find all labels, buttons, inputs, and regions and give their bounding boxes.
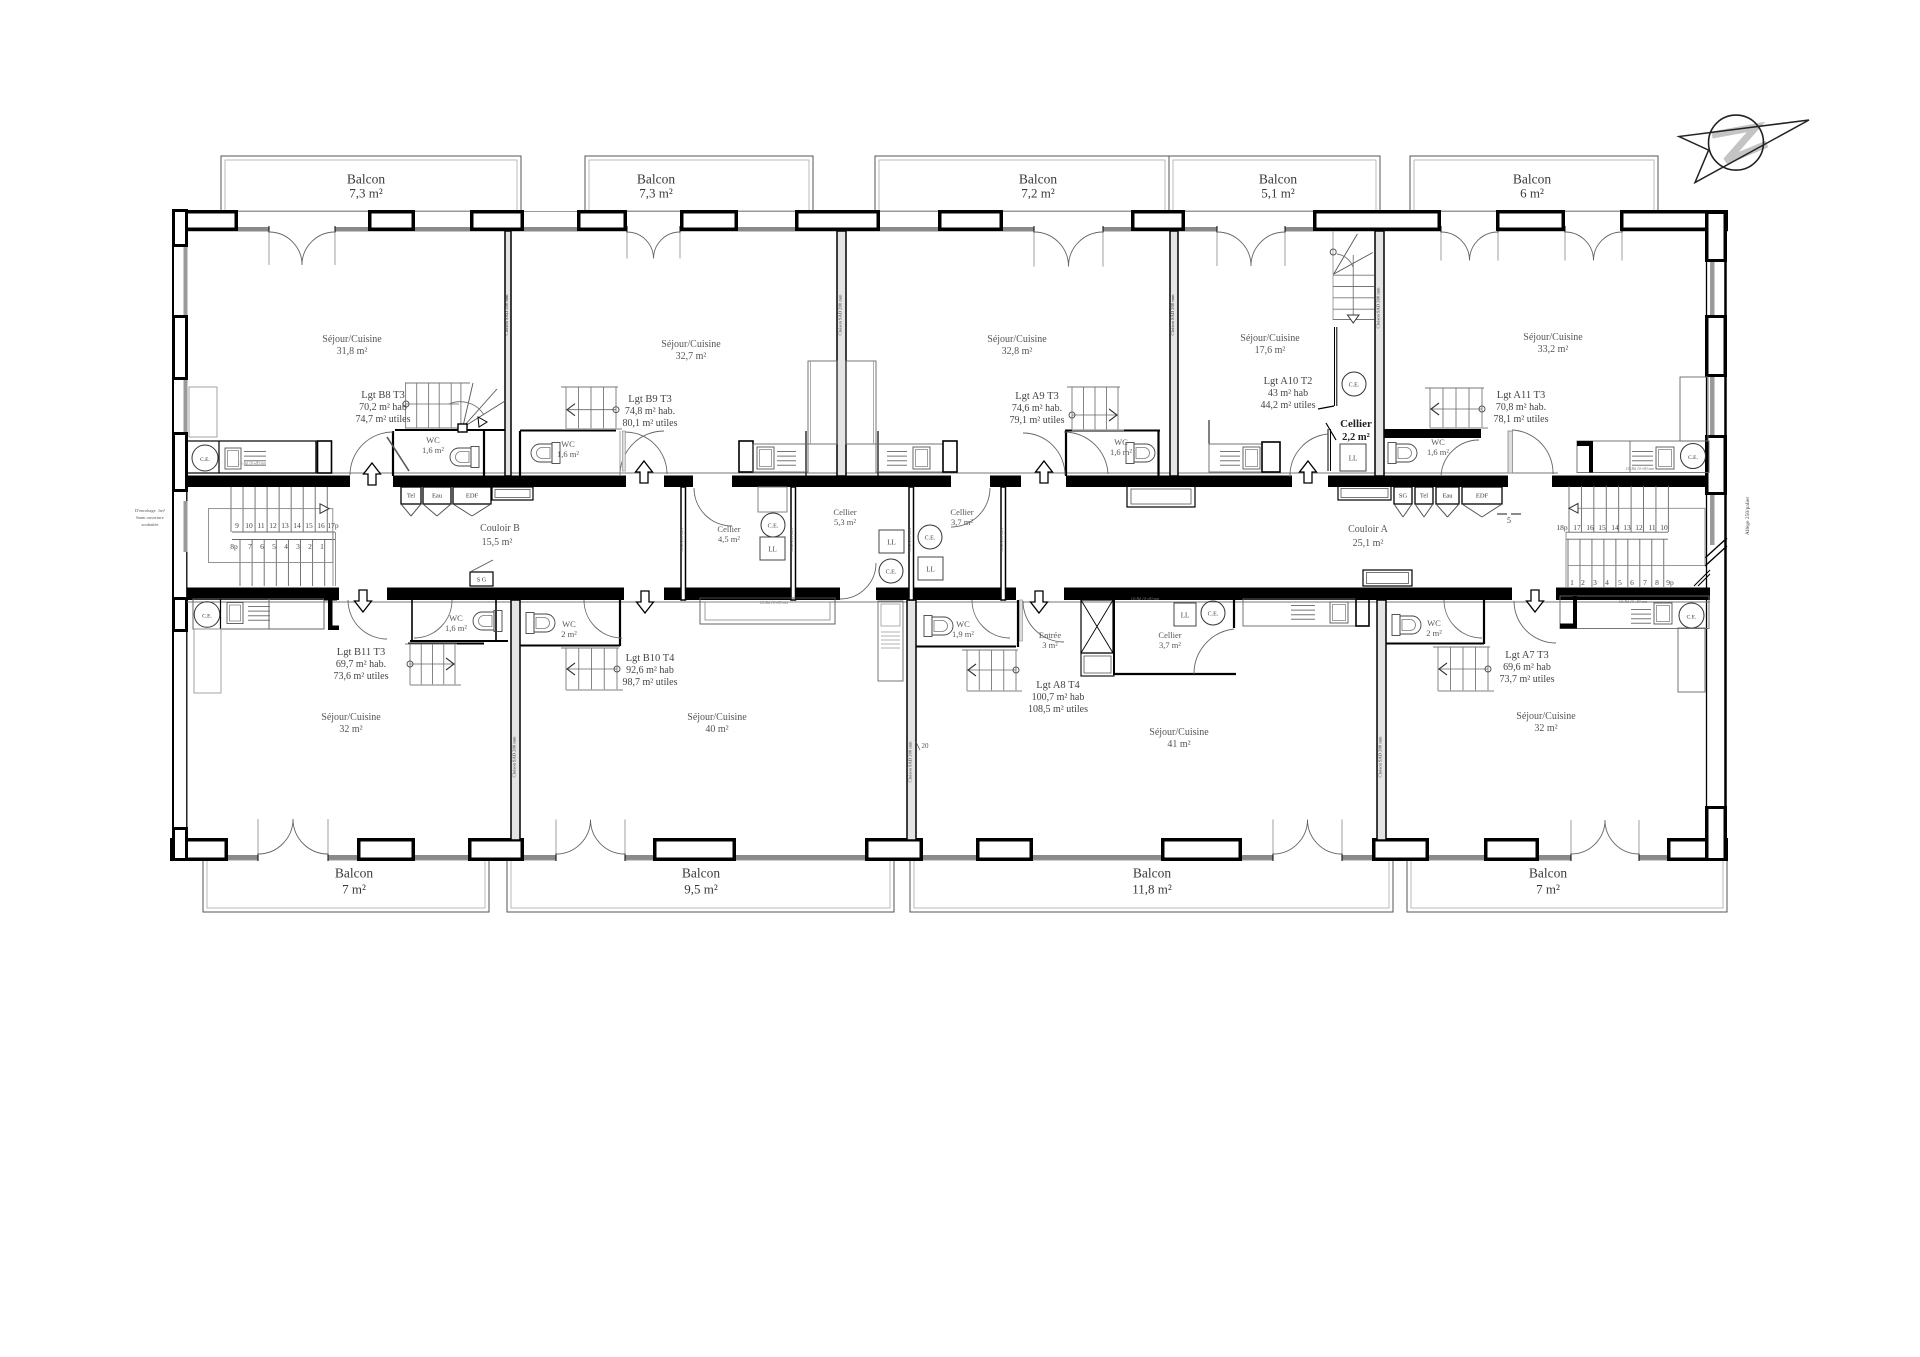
svg-text:12: 12 [269,521,277,530]
svg-text:3 m²: 3 m² [1042,640,1058,650]
svg-text:10: 10 [245,521,253,530]
svg-text:40 m²: 40 m² [705,724,728,735]
svg-text:70,2 m² hab: 70,2 m² hab [359,402,407,413]
svg-text:Cellier: Cellier [833,507,856,517]
svg-text:1,6 m²: 1,6 m² [1110,447,1132,457]
svg-text:souhaitée: souhaitée [142,522,159,527]
svg-text:Balcon: Balcon [347,172,385,187]
svg-text:Cellier: Cellier [950,507,973,517]
svg-text:7: 7 [1643,578,1647,587]
svg-text:13: 13 [281,521,289,530]
svg-text:70,8 m² hab.: 70,8 m² hab. [1496,402,1546,413]
svg-text:Cloison SAD 200 mm: Cloison SAD 200 mm [908,741,913,782]
svg-text:32,7 m²: 32,7 m² [676,351,707,362]
svg-text:Entrée: Entrée [1039,630,1061,640]
svg-text:11,8 m²: 11,8 m² [1132,882,1172,897]
svg-text:Balcon: Balcon [1133,866,1171,881]
svg-text:69,7 m² hab.: 69,7 m² hab. [336,659,386,670]
svg-text:73,7 m² utiles: 73,7 m² utiles [1500,674,1555,685]
svg-text:7,2 m²: 7,2 m² [1021,186,1055,201]
svg-text:74,8 m² hab.: 74,8 m² hab. [625,406,675,417]
svg-text:8: 8 [1655,578,1659,587]
svg-text:16: 16 [317,521,325,530]
svg-text:SG: SG [1399,493,1408,500]
svg-text:LL: LL [926,566,935,574]
svg-text:Tel: Tel [1420,493,1428,500]
svg-text:1,9 m²: 1,9 m² [952,629,974,639]
svg-text:Lgt A11 T3: Lgt A11 T3 [1497,390,1545,401]
svg-text:18p: 18p [1556,523,1568,532]
svg-text:WC: WC [1427,618,1441,628]
svg-text:C.E.: C.E. [1208,612,1219,618]
svg-text:Balcon: Balcon [1529,866,1567,881]
svg-text:Séjour/Cuisine: Séjour/Cuisine [661,339,721,350]
svg-text:Séjour/Cuisine: Séjour/Cuisine [1149,727,1209,738]
svg-text:2: 2 [308,542,312,551]
svg-text:43 m² hab: 43 m² hab [1268,388,1308,399]
svg-text:EDF: EDF [466,493,479,500]
svg-text:C.E.: C.E. [1688,455,1698,461]
svg-text:Eau: Eau [1442,493,1453,500]
svg-text:1: 1 [1570,578,1574,587]
svg-text:S G: S G [477,578,487,584]
svg-text:Balcon: Balcon [1513,172,1551,187]
svg-text:78,1 m² utiles: 78,1 m² utiles [1494,414,1549,425]
svg-text:LL: LL [887,539,896,547]
svg-text:Allège 250/palier: Allège 250/palier [1745,497,1751,536]
svg-text:Balcon: Balcon [335,866,373,881]
svg-text:15,5 m²: 15,5 m² [482,537,513,548]
svg-text:Lgt B11 T3: Lgt B11 T3 [337,647,385,658]
svg-text:17,6 m²: 17,6 m² [1255,345,1286,356]
svg-text:108,5 m² utiles: 108,5 m² utiles [1028,704,1088,715]
svg-text:Eau: Eau [432,493,443,500]
svg-text:Balcon: Balcon [1019,172,1057,187]
svg-text:SAD 200 mm: SAD 200 mm [789,528,794,552]
svg-text:Couloir A: Couloir A [1348,524,1389,535]
svg-text:Séjour/Cuisine: Séjour/Cuisine [687,712,747,723]
svg-text:Séjour/Cuisine: Séjour/Cuisine [1240,333,1300,344]
svg-text:12: 12 [1635,523,1643,532]
svg-text:41 m²: 41 m² [1167,739,1190,750]
svg-text:15: 15 [305,521,313,530]
svg-text:Cb.Bd 10+80 mm: Cb.Bd 10+80 mm [760,600,789,605]
svg-text:Lgt A8 T4: Lgt A8 T4 [1036,680,1080,691]
svg-text:Cloison SAD 200 mm: Cloison SAD 200 mm [1378,736,1383,777]
svg-text:5,3 m²: 5,3 m² [834,517,856,527]
svg-text:2,2 m²: 2,2 m² [1342,432,1370,443]
svg-text:92,6 m² hab: 92,6 m² hab [626,665,674,676]
svg-text:74,7 m² utiles: 74,7 m² utiles [356,414,411,425]
svg-text:Balcon: Balcon [682,866,720,881]
svg-text:C.E.: C.E. [200,457,210,463]
svg-text:WC: WC [426,435,440,445]
svg-text:7: 7 [248,542,252,551]
svg-text:4: 4 [284,542,288,551]
svg-text:1: 1 [320,542,324,551]
svg-text:Séjour/Cuisine: Séjour/Cuisine [1516,711,1576,722]
svg-text:16: 16 [1586,523,1594,532]
svg-text:Lgt B10 T4: Lgt B10 T4 [626,653,676,664]
svg-text:Cloison SAD 200 mm: Cloison SAD 200 mm [512,736,517,777]
svg-text:5: 5 [1507,516,1511,525]
svg-text:14: 14 [293,521,301,530]
svg-text:1,6 m²: 1,6 m² [445,623,467,633]
svg-text:Lgt A7 T3: Lgt A7 T3 [1505,650,1549,661]
svg-text:2: 2 [1581,578,1585,587]
svg-text:44,2 m² utiles: 44,2 m² utiles [1261,400,1316,411]
svg-text:3,7 m²: 3,7 m² [1159,640,1181,650]
svg-text:14: 14 [1611,523,1619,532]
svg-text:Lgt B8 T3: Lgt B8 T3 [361,390,405,401]
svg-text:11: 11 [1648,523,1655,532]
svg-text:C.E.: C.E. [1349,383,1360,389]
svg-text:C.E.: C.E. [768,524,779,530]
svg-text:LL: LL [1181,612,1190,620]
svg-text:17p: 17p [327,521,339,530]
svg-text:Séjour/Cuisine: Séjour/Cuisine [1523,332,1583,343]
svg-text:3,7 m²: 3,7 m² [951,517,973,527]
svg-text:WC: WC [1431,437,1445,447]
svg-text:80,1 m² utiles: 80,1 m² utiles [623,418,678,429]
svg-text:79,1 m² utiles: 79,1 m² utiles [1010,415,1065,426]
svg-text:7 m²: 7 m² [342,882,366,897]
svg-text:WC: WC [562,619,576,629]
svg-text:1,6 m²: 1,6 m² [422,445,444,455]
svg-text:Couloir B: Couloir B [480,523,520,534]
svg-text:Cloison SAD 200 mm: Cloison SAD 200 mm [1170,294,1175,335]
svg-text:D'enrobage 1m²: D'enrobage 1m² [135,508,166,513]
svg-text:Lgt A9 T3: Lgt A9 T3 [1015,391,1059,402]
svg-text:WC: WC [561,439,575,449]
svg-text:4: 4 [1605,578,1609,587]
svg-text:SAD 200 mm: SAD 200 mm [907,528,912,552]
svg-text:17: 17 [1573,523,1581,532]
svg-text:Séjour/Cuisine: Séjour/Cuisine [987,334,1047,345]
svg-text:C.E.: C.E. [925,536,936,542]
svg-text:Cb.Bd 10+80 mm: Cb.Bd 10+80 mm [1619,599,1648,604]
svg-text:2 m²: 2 m² [561,629,577,639]
svg-text:100,7 m² hab: 100,7 m² hab [1032,692,1085,703]
svg-text:5: 5 [272,542,276,551]
svg-text:SAD 200 mm: SAD 200 mm [999,528,1004,552]
svg-text:98,7 m² utiles: 98,7 m² utiles [623,677,678,688]
svg-text:WC: WC [956,619,970,629]
svg-text:WC: WC [1114,437,1128,447]
svg-text:6mm ouverture: 6mm ouverture [136,515,164,520]
svg-text:73,6 m² utiles: 73,6 m² utiles [334,671,389,682]
svg-text:9p: 9p [1666,578,1674,587]
svg-text:25,1 m²: 25,1 m² [1353,538,1384,549]
svg-text:Cb.Bd 10+80 mm: Cb.Bd 10+80 mm [1131,596,1160,601]
svg-text:10: 10 [1660,523,1668,532]
svg-text:SAD 200 mm: SAD 200 mm [679,528,684,552]
svg-text:6: 6 [1630,578,1634,587]
svg-text:Cellier: Cellier [1340,418,1372,430]
svg-text:5,1 m²: 5,1 m² [1261,186,1295,201]
svg-text:Cloison SAD 200 mm: Cloison SAD 200 mm [504,294,509,335]
svg-text:Tel: Tel [407,493,415,500]
svg-text:WC: WC [449,613,463,623]
svg-text:Cloison SAD 200 mm: Cloison SAD 200 mm [1376,287,1381,328]
svg-text:1,6 m²: 1,6 m² [1427,447,1449,457]
svg-text:3: 3 [1593,578,1597,587]
svg-text:Lgt B9 T3: Lgt B9 T3 [628,394,672,405]
svg-text:2 m²: 2 m² [1426,628,1442,638]
svg-text:7,3 m²: 7,3 m² [639,186,673,201]
svg-text:20: 20 [922,742,930,750]
svg-text:32,8 m²: 32,8 m² [1002,346,1033,357]
svg-text:74,6 m² hab.: 74,6 m² hab. [1012,403,1062,414]
svg-text:Cellier: Cellier [1158,630,1181,640]
svg-text:3: 3 [296,542,300,551]
svg-text:Cb.Bd 10+80 mm: Cb.Bd 10+80 mm [1626,466,1655,471]
svg-text:9: 9 [235,521,239,530]
svg-text:32 m²: 32 m² [339,724,362,735]
svg-text:15: 15 [1598,523,1606,532]
svg-text:69,6 m² hab: 69,6 m² hab [1503,662,1551,673]
svg-text:13: 13 [1623,523,1631,532]
svg-text:1,6 m²: 1,6 m² [557,449,579,459]
svg-text:EDF: EDF [1476,493,1489,500]
svg-text:11: 11 [257,521,264,530]
svg-text:C.E.: C.E. [202,614,212,620]
svg-text:Balcon: Balcon [637,172,675,187]
svg-text:Cloison SAD 200 mm: Cloison SAD 200 mm [838,294,843,335]
svg-text:6: 6 [260,542,264,551]
svg-text:LL: LL [1349,455,1358,463]
svg-text:Séjour/Cuisine: Séjour/Cuisine [322,334,382,345]
svg-text:4,5 m²: 4,5 m² [718,534,740,544]
svg-text:7 m²: 7 m² [1536,882,1560,897]
svg-text:Séjour/Cuisine: Séjour/Cuisine [321,712,381,723]
svg-text:Cellier: Cellier [717,524,740,534]
svg-text:6 m²: 6 m² [1520,186,1544,201]
svg-text:Lgt A10 T2: Lgt A10 T2 [1264,376,1313,387]
svg-text:31,8 m²: 31,8 m² [337,346,368,357]
svg-text:LL: LL [768,546,777,554]
svg-text:32 m²: 32 m² [1534,723,1557,734]
svg-text:Cb.Bd 10+80 mm: Cb.Bd 10+80 mm [238,461,267,466]
svg-text:33,2 m²: 33,2 m² [1538,344,1569,355]
svg-text:7,3 m²: 7,3 m² [349,186,383,201]
svg-text:Balcon: Balcon [1259,172,1297,187]
svg-text:C.E.: C.E. [886,570,897,576]
svg-text:5: 5 [1618,578,1622,587]
svg-text:C.E.: C.E. [1687,615,1697,621]
svg-text:8p: 8p [230,542,238,551]
svg-text:9,5 m²: 9,5 m² [684,882,718,897]
